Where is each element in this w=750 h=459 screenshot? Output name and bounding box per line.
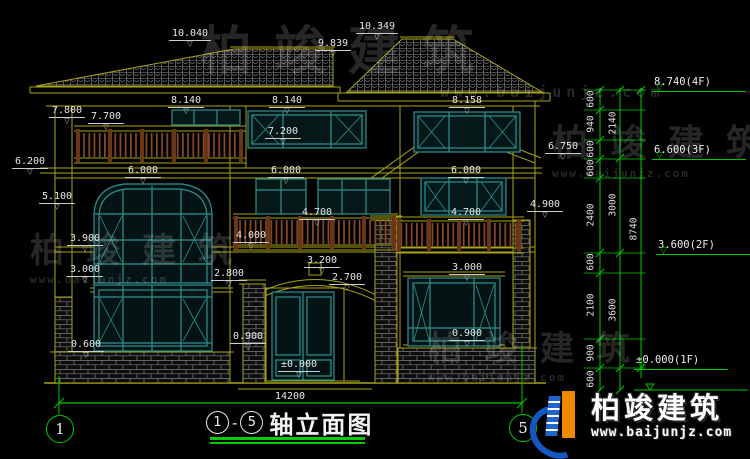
level-triangle-icon: ▽	[656, 84, 663, 93]
elevation-triangle-icon: ▽	[448, 220, 484, 226]
chain-dimension: 3600	[608, 299, 619, 322]
elevation-triangle-icon: ▽	[356, 34, 398, 40]
floor-level-marker: 8.740(4F) ▽	[652, 72, 746, 92]
elevation-triangle-icon: ▽	[211, 281, 247, 287]
elevation-triangle-icon: ▽	[39, 204, 75, 210]
dimension-label: 8.140 ▽	[269, 90, 305, 114]
elevation-triangle-icon: ▽	[49, 118, 85, 124]
elevation-triangle-icon: ▽	[230, 344, 266, 350]
dimension-label: 8.158 ▽	[449, 90, 485, 114]
dimension-label: 2.700 ▽	[329, 267, 365, 291]
dimension-label: 6.200 ▽	[12, 151, 48, 175]
dimension-label: 10.349 ▽	[356, 16, 398, 40]
elevation-triangle-icon: ▽	[299, 220, 335, 226]
chain-dimension: 900	[586, 344, 597, 361]
title-underline-2	[210, 442, 365, 444]
title-axis-circle-5: 5	[240, 411, 263, 434]
dimension-label: 0.900 ▽	[449, 323, 485, 347]
elevation-triangle-icon: ▽	[449, 275, 485, 281]
dimension-label: 3.000 ▽	[449, 257, 485, 281]
elevation-triangle-icon: ▽	[448, 178, 484, 184]
dimension-label: 3.900 ▽	[67, 228, 103, 252]
logo-company-name: 柏竣建筑	[591, 392, 732, 425]
floor-level-marker: ±0.000(1F) ▽	[634, 350, 728, 370]
elevation-triangle-icon: ▽	[269, 108, 305, 114]
dimension-label: 7.200 ▽	[265, 121, 301, 145]
dimension-label: 10.040 ▽	[169, 23, 211, 47]
level-triangle-icon: ▽	[638, 362, 645, 371]
floor-level-marker: 6.600(3F) ▽	[652, 140, 746, 160]
elevation-triangle-icon: ▽	[315, 51, 351, 57]
chain-dimension: 600	[586, 159, 597, 176]
chain-dimension: 2400	[586, 204, 597, 227]
elevation-triangle-icon: ▽	[449, 108, 485, 114]
chain-dimension: 600	[586, 370, 597, 387]
elevation-triangle-icon: ▽	[67, 277, 103, 283]
dimension-label: 3.000 ▽	[67, 259, 103, 283]
level-triangle-icon: ▽	[660, 247, 667, 256]
elevation-triangle-icon: ▽	[88, 124, 124, 130]
dimension-label: 8.140 ▽	[168, 90, 204, 114]
dimension-label: 4.000 ▽	[233, 225, 269, 249]
dimension-label: 0.900 ▽	[230, 326, 266, 350]
chain-dimension: 8740	[629, 218, 640, 241]
axis-bubble-1: 1	[46, 415, 74, 443]
chain-dimension: 3000	[608, 194, 619, 217]
floor-level-marker: 3.600(2F) ▽	[656, 235, 750, 255]
window-3f-right	[414, 112, 520, 152]
logo-building-orange	[562, 391, 575, 438]
title-text: 轴立面图	[269, 405, 373, 440]
elevation-triangle-icon: ▽	[168, 108, 204, 114]
logo-text-wrap: 柏竣建筑 www.baijunjz.com	[591, 392, 732, 440]
dimension-label: 4.900 ▽	[527, 194, 563, 218]
title-dash: -	[232, 414, 237, 432]
watermark-url: www.baijunjz.com	[552, 167, 750, 180]
elevation-triangle-icon: ▽	[233, 243, 269, 249]
title-axis-circle-1: 1	[206, 411, 229, 434]
elevation-triangle-icon: ▽	[527, 212, 563, 218]
logo-website-url: www.baijunjz.com	[591, 425, 732, 440]
elevation-triangle-icon: ▽	[68, 352, 104, 358]
cad-elevation-screenshot: 柏竣建筑 www.baijunjz.com 柏竣建筑 www.baijunjz.…	[0, 0, 750, 459]
chain-dimension: 600	[586, 90, 597, 107]
dimension-label: 6.000 ▽	[448, 160, 484, 184]
dimension-label: 2.800 ▽	[211, 263, 247, 287]
chain-dimension: 2140	[608, 112, 619, 135]
dimension-label: 4.700 ▽	[448, 202, 484, 226]
overall-width-dimension: 14200	[275, 391, 305, 402]
dimension-label: 7.800 ▽	[49, 100, 85, 124]
elevation-triangle-icon: ▽	[169, 41, 211, 47]
dimension-label: 5.100 ▽	[39, 186, 75, 210]
elevation-triangle-icon: ▽	[449, 341, 485, 347]
chain-dimension: 940	[586, 115, 597, 132]
drawing-title: 1 - 5 轴立面图	[206, 405, 373, 440]
dimension-label: 0.600 ▽	[68, 334, 104, 358]
dimension-label: ±0.000 ▽	[278, 354, 320, 378]
elevation-triangle-icon: ▽	[265, 139, 301, 145]
dimension-label: 6.000 ▽	[125, 160, 161, 184]
dimension-label: 6.000 ▽	[268, 160, 304, 184]
chain-dimension: 2100	[586, 294, 597, 317]
elevation-triangle-icon: ▽	[545, 154, 581, 160]
company-logo: 柏竣建筑 www.baijunjz.com	[528, 390, 750, 459]
dimension-label: 9.839 ▽	[315, 33, 351, 57]
elevation-triangle-icon: ▽	[268, 178, 304, 184]
company-logo-icon	[528, 390, 586, 454]
elevation-triangle-icon: ▽	[125, 178, 161, 184]
window-1f-left	[94, 285, 212, 351]
elevation-triangle-icon: ▽	[67, 246, 103, 252]
chain-dimension: 600	[586, 140, 597, 157]
dimension-label: 6.750 ▽	[545, 136, 581, 160]
chain-dimension: 600	[586, 253, 597, 270]
elevation-triangle-icon: ▽	[278, 372, 320, 378]
watermark-url: www.baijunjz.com	[428, 371, 652, 384]
level-triangle-icon: ▽	[656, 152, 663, 161]
watermark-text: 柏竣建筑	[200, 26, 665, 78]
title-underline	[210, 437, 365, 440]
elevation-triangle-icon: ▽	[12, 169, 48, 175]
dimension-label: 4.700 ▽	[299, 202, 335, 226]
elevation-triangle-icon: ▽	[329, 285, 365, 291]
dimension-label: 7.700 ▽	[88, 106, 124, 130]
balcony-3f-left	[74, 126, 246, 163]
